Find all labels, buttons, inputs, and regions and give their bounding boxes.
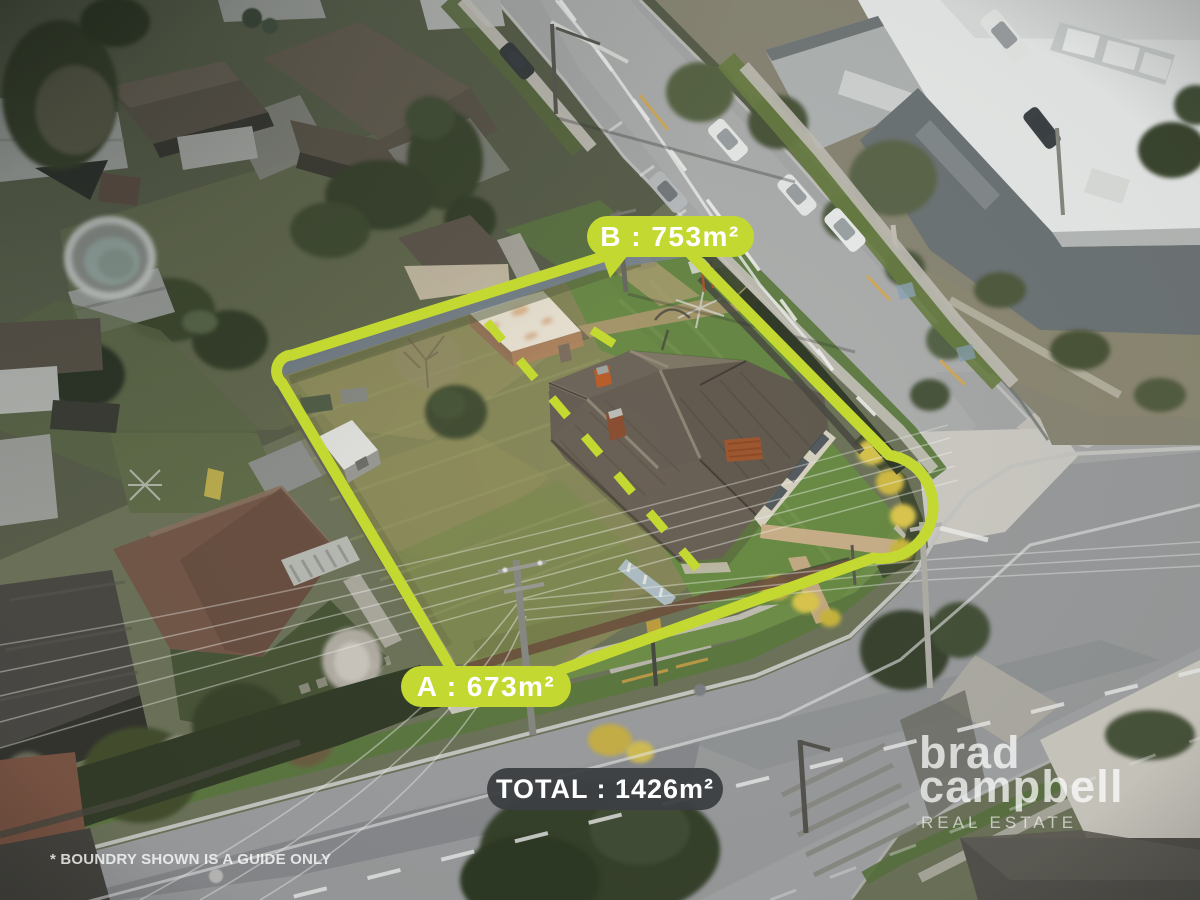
svg-text:* BOUNDRY SHOWN IS A GUIDE ONL: * BOUNDRY SHOWN IS A GUIDE ONLY xyxy=(50,851,331,868)
svg-text:TOTAL : 1426m²: TOTAL : 1426m² xyxy=(496,774,714,804)
svg-text:REAL ESTATE: REAL ESTATE xyxy=(921,813,1077,832)
svg-text:B : 753m²: B : 753m² xyxy=(600,221,740,252)
svg-text:A : 673m²: A : 673m² xyxy=(417,671,556,702)
svg-text:campbell: campbell xyxy=(919,761,1124,812)
